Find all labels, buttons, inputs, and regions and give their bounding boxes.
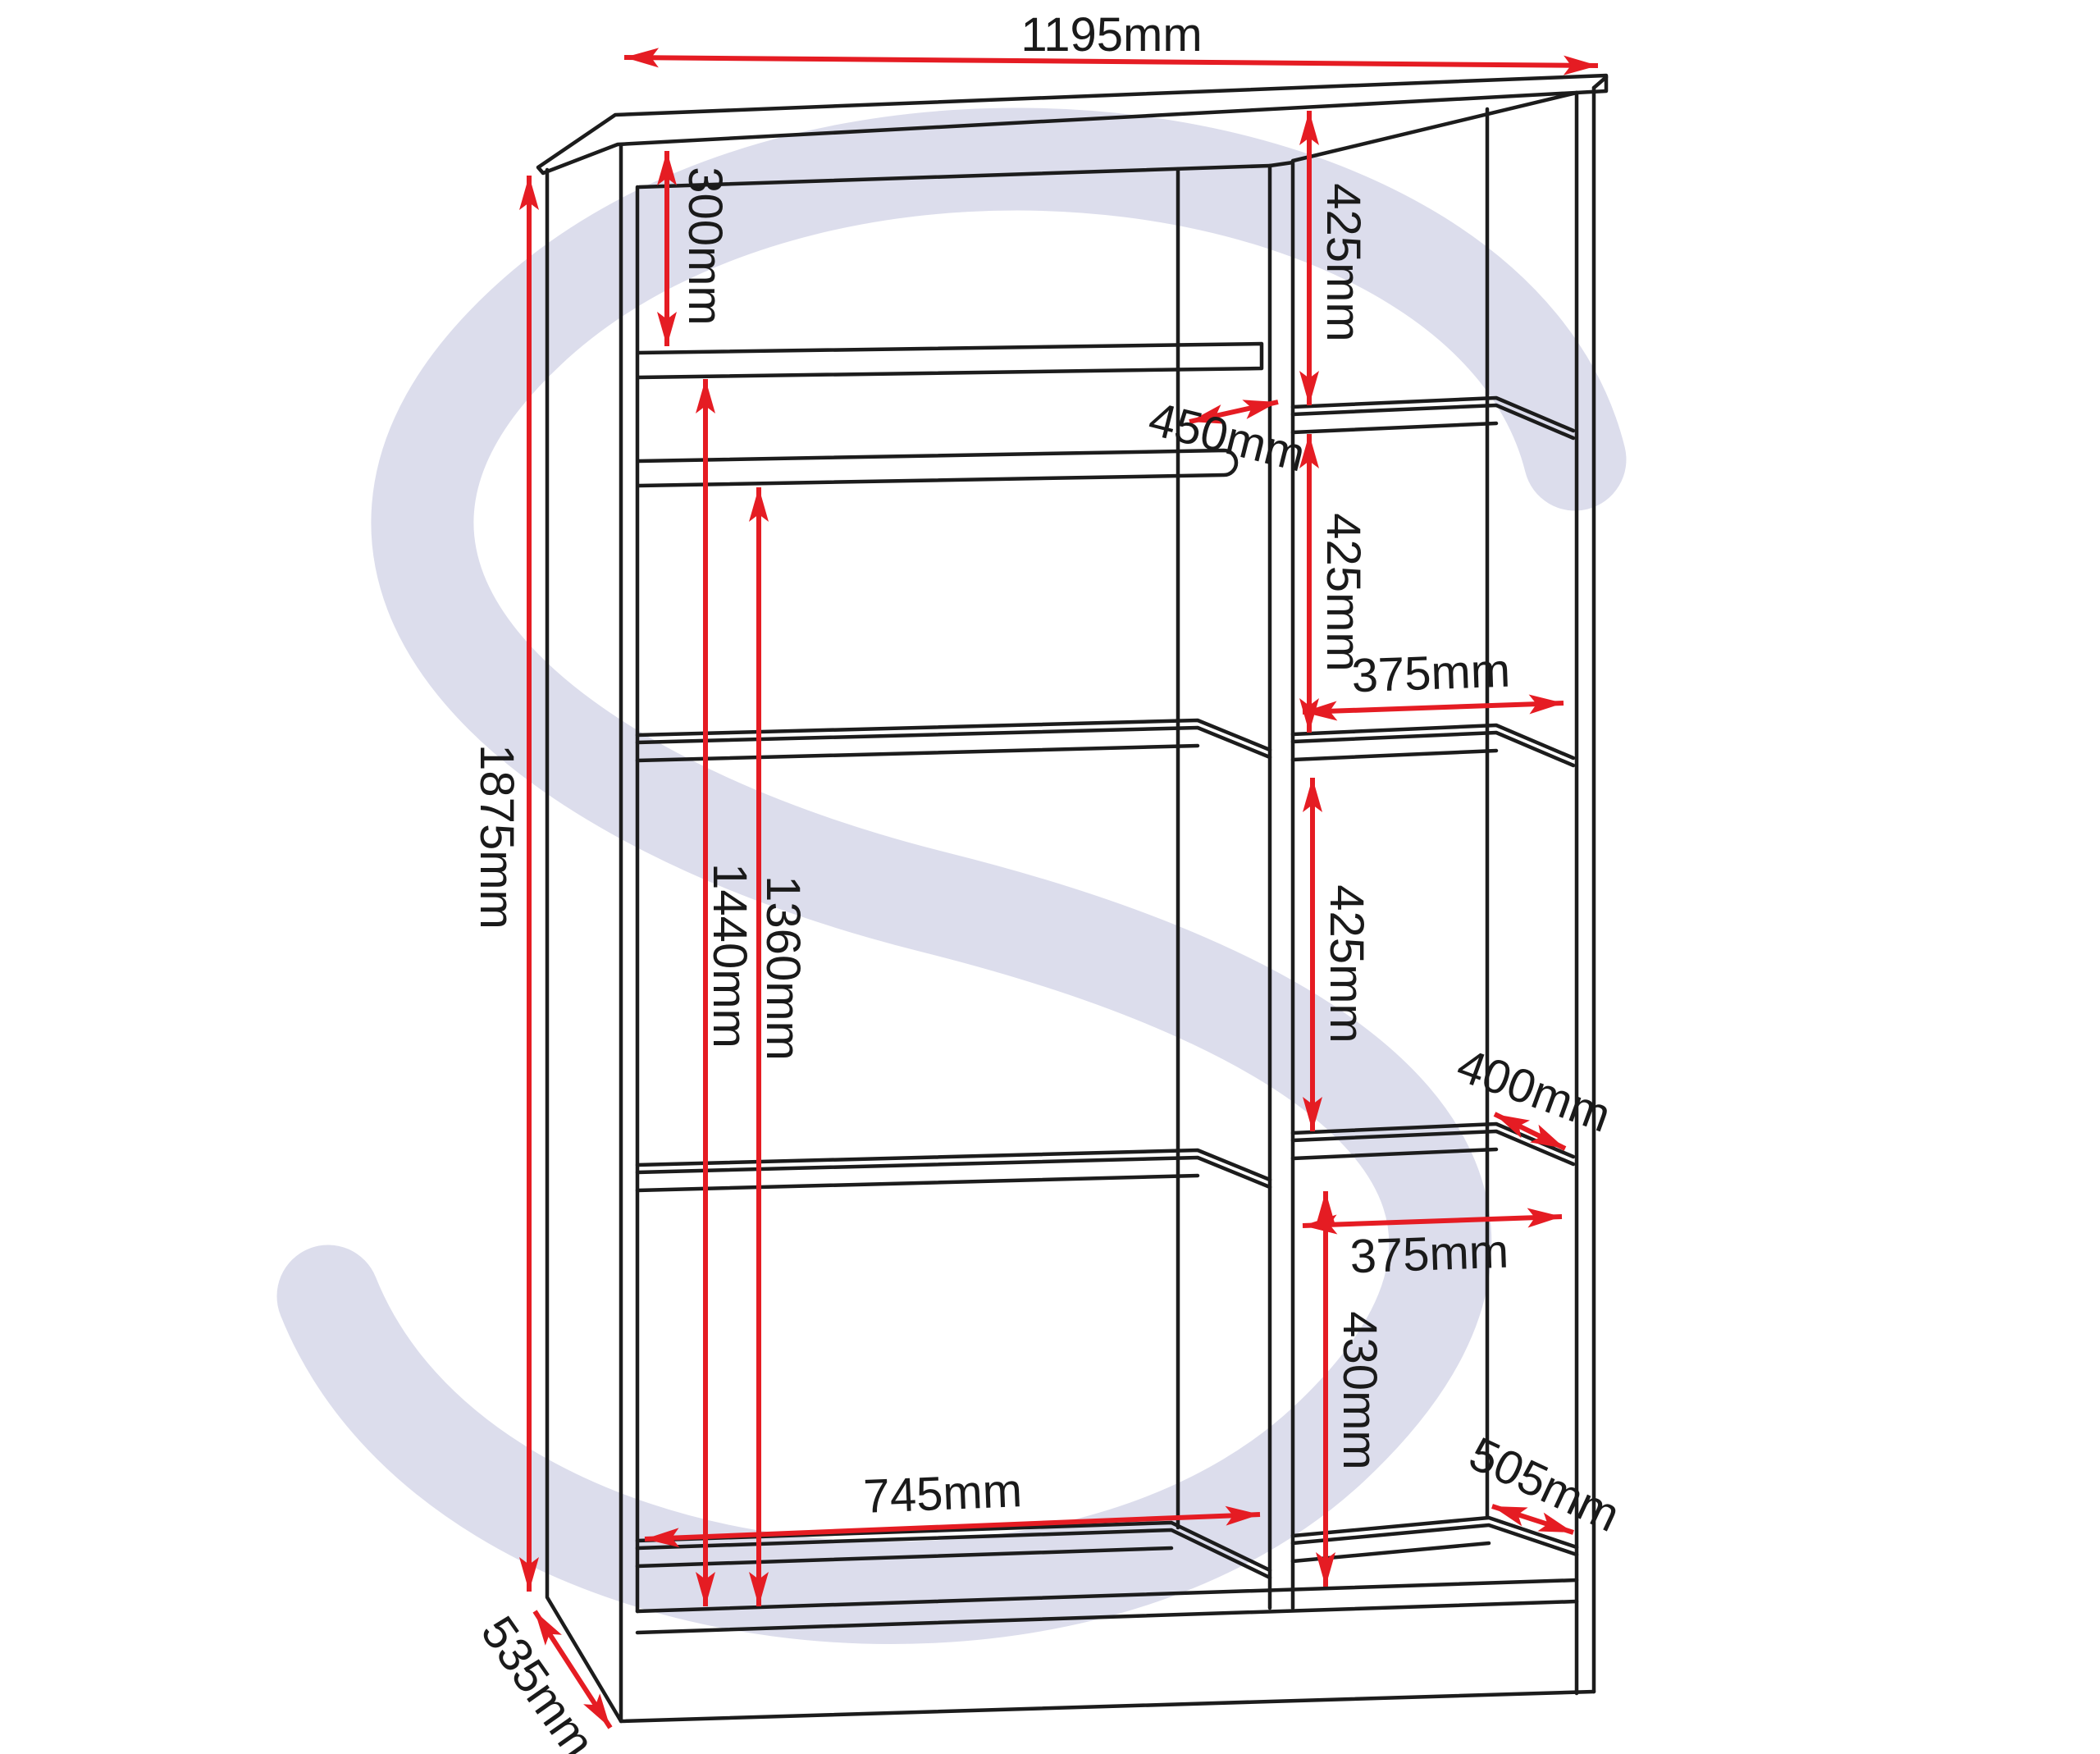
label-bay2: 425mm: [1317, 513, 1370, 671]
label-shelf-width-upper: 375mm: [1351, 644, 1512, 703]
dim-shelf-width-upper-line: [1303, 703, 1564, 712]
label-rail-depth: 450mm: [1144, 392, 1310, 482]
label-bay4: 430mm: [1333, 1311, 1386, 1469]
label-overall-height: 1875mm: [470, 744, 523, 930]
label-shelf-width-lower: 375mm: [1349, 1225, 1510, 1284]
label-1360: 1360mm: [756, 875, 810, 1061]
diagram-canvas: 1195mm 1875mm 300mm 1440mm 1360mm 745mm …: [0, 0, 2100, 1754]
label-bay1: 425mm: [1317, 183, 1370, 341]
label-top-section: 300mm: [678, 167, 732, 325]
label-overall-width: 1195mm: [1020, 8, 1202, 62]
label-bay3: 425mm: [1320, 884, 1373, 1043]
label-left-width: 745mm: [862, 1464, 1023, 1523]
wardrobe-dimension-diagram: 1195mm 1875mm 300mm 1440mm 1360mm 745mm …: [0, 0, 2100, 1754]
label-1440: 1440mm: [703, 863, 756, 1048]
label-overall-depth: 535mm: [471, 1607, 605, 1754]
